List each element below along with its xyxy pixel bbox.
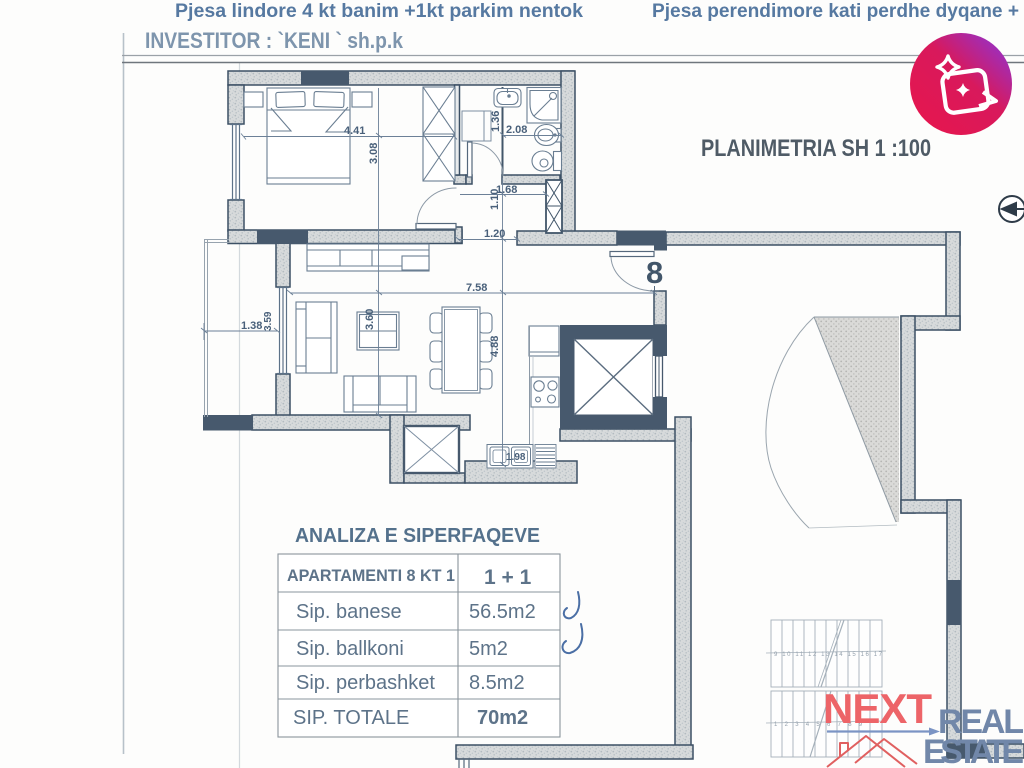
svg-text:ANALIZA E SIPERFAQEVE: ANALIZA E SIPERFAQEVE xyxy=(295,525,540,547)
svg-text:Pjesa perendimore kati perd: Pjesa perendimore kati perdhe dyqane + xyxy=(652,0,1019,22)
svg-text:NEXT: NEXT xyxy=(823,685,932,732)
svg-text:70m2: 70m2 xyxy=(477,707,528,729)
svg-text:Sip. perbashket: Sip. perbashket xyxy=(296,672,435,694)
svg-text:1 + 1: 1 + 1 xyxy=(484,566,532,589)
svg-text:3.59: 3.59 xyxy=(263,311,274,331)
svg-text:3.60: 3.60 xyxy=(364,309,376,330)
svg-text:8.5m2: 8.5m2 xyxy=(469,672,525,694)
svg-text:8: 8 xyxy=(646,255,663,290)
svg-text:4.41: 4.41 xyxy=(344,125,365,137)
svg-text:1.20: 1.20 xyxy=(484,228,505,240)
svg-text:INVESTITOR : `KENI ` sh.p.k: INVESTITOR : `KENI ` sh.p.k xyxy=(145,28,404,53)
svg-text:3.08: 3.08 xyxy=(368,143,380,164)
svg-text:1.38: 1.38 xyxy=(241,320,262,332)
svg-text:9 10 11 12 13 14 15 16 17: 9 10 11 12 13 14 15 16 17 xyxy=(774,652,884,658)
svg-text:1.10: 1.10 xyxy=(489,189,501,210)
svg-text:ESTATE: ESTATE xyxy=(923,733,1024,768)
svg-text:Sip. ballkoni: Sip. ballkoni xyxy=(296,638,404,660)
svg-text:4.88: 4.88 xyxy=(489,336,501,357)
svg-text:2.08: 2.08 xyxy=(506,124,527,136)
svg-text:1.36: 1.36 xyxy=(490,111,502,132)
svg-text:1.98: 1.98 xyxy=(506,452,526,463)
svg-text:APARTAMENTI 8 KT 1: APARTAMENTI 8 KT 1 xyxy=(287,567,455,585)
svg-text:5m2: 5m2 xyxy=(469,638,508,660)
svg-text:56.5m2: 56.5m2 xyxy=(469,601,536,623)
svg-text:PLANIMETRIA SH 1 :100: PLANIMETRIA SH 1 :100 xyxy=(701,135,931,162)
svg-text:7.58: 7.58 xyxy=(466,282,487,294)
svg-text:Pjesa lindore 4 kt banim +: Pjesa lindore 4 kt banim +1kt parkim nen… xyxy=(175,0,583,22)
svg-text:Sip. banese: Sip. banese xyxy=(296,601,402,623)
svg-text:SIP. TOTALE: SIP. TOTALE xyxy=(293,707,409,729)
